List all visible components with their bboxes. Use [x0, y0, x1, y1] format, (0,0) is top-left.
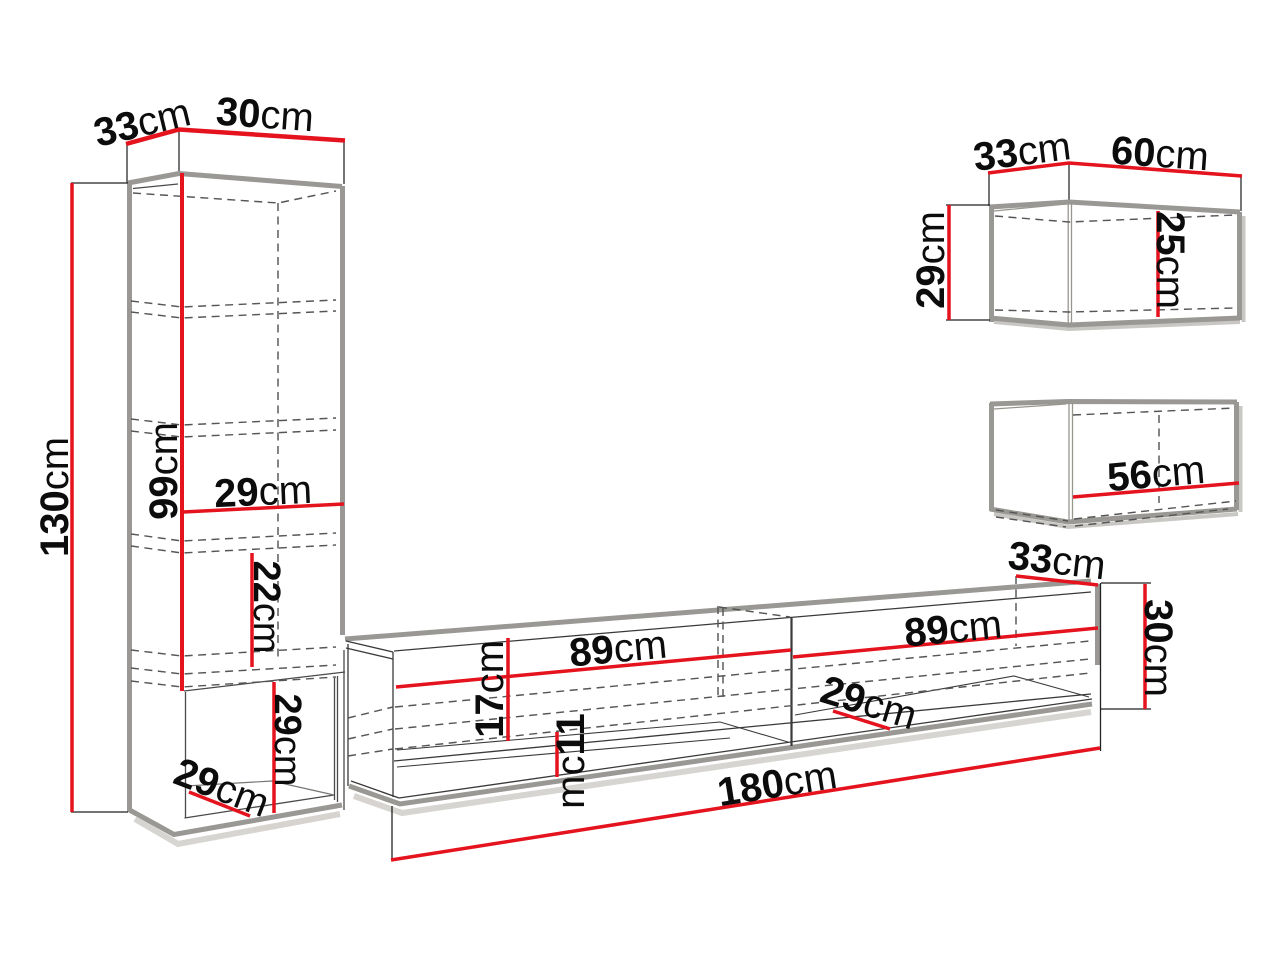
svg-text:mc11: mc11 [549, 713, 593, 809]
svg-text:56cm: 56cm [1105, 448, 1206, 500]
svg-text:89cm: 89cm [902, 602, 1004, 655]
svg-text:25cm: 25cm [1148, 211, 1192, 309]
svg-text:30cm: 30cm [215, 90, 316, 141]
svg-text:30cm: 30cm [1136, 599, 1180, 697]
svg-text:99cm: 99cm [142, 422, 186, 520]
svg-text:17cm: 17cm [468, 640, 512, 738]
svg-text:29cm: 29cm [266, 694, 308, 787]
svg-text:29cm: 29cm [213, 468, 313, 516]
svg-text:22cm: 22cm [245, 561, 287, 654]
svg-text:29cm: 29cm [909, 211, 953, 309]
svg-text:130cm: 130cm [33, 437, 77, 557]
svg-text:60cm: 60cm [1110, 129, 1211, 180]
svg-text:89cm: 89cm [567, 622, 669, 675]
